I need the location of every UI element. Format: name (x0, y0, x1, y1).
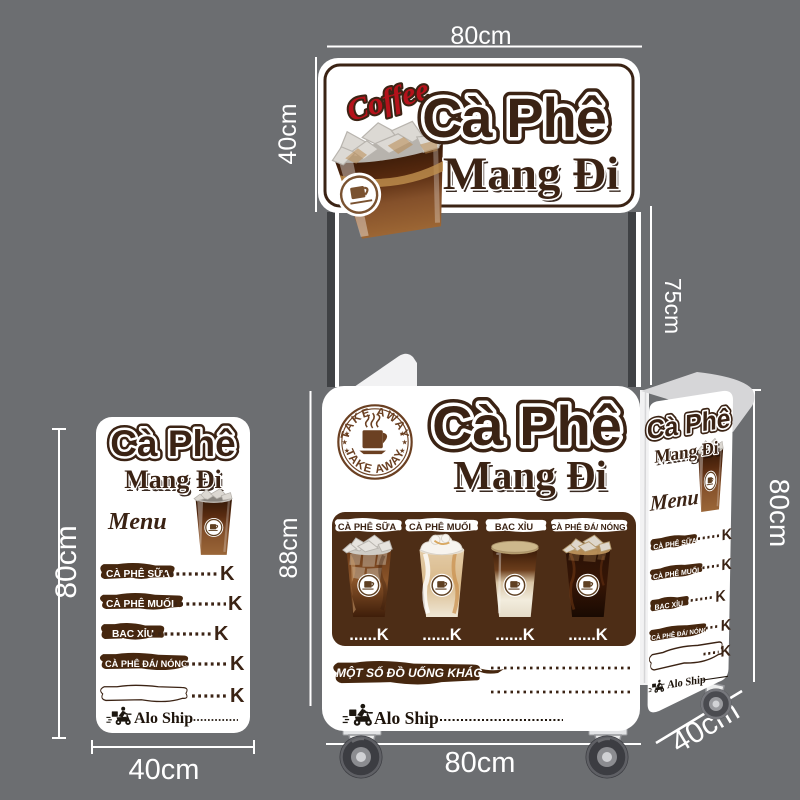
svg-text:Menu: Menu (107, 509, 167, 535)
svg-text:CÀ PHÊ ĐÁ/ NÓNG: CÀ PHÊ ĐÁ/ NÓNG (105, 658, 188, 669)
svg-text:CÀ PHÊ MUỐI: CÀ PHÊ MUỐI (409, 521, 471, 532)
svg-text:......K: ......K (495, 626, 535, 644)
svg-text:K: K (721, 616, 732, 635)
svg-text:Cà Phê: Cà Phê (422, 86, 606, 149)
svg-text:K: K (214, 623, 229, 645)
svg-text:K: K (715, 587, 726, 606)
svg-text:CÀ PHÊ SỮA: CÀ PHÊ SỮA (338, 521, 397, 532)
svg-text:Mang Đi: Mang Đi (453, 452, 607, 498)
svg-text:K: K (230, 653, 245, 675)
svg-text:BẠC XỈU: BẠC XỈU (112, 627, 154, 640)
svg-text:CÀ PHÊ MUỐI: CÀ PHÊ MUỐI (106, 596, 174, 610)
svg-text:Mang Đi: Mang Đi (443, 148, 619, 200)
svg-text:MỘT SỐ ĐỒ UỐNG KHÁC: MỘT SỐ ĐỒ UỐNG KHÁC (336, 665, 482, 680)
svg-text:CÀ PHÊ SỮA: CÀ PHÊ SỮA (106, 567, 171, 580)
svg-text:BẠC XỈU: BẠC XỈU (495, 521, 534, 532)
svg-text:Mang Đi: Mang Đi (124, 465, 222, 494)
svg-text:Alo Ship: Alo Ship (134, 710, 193, 727)
svg-text:K: K (230, 685, 245, 707)
svg-text:K: K (722, 525, 733, 544)
svg-text:K: K (228, 593, 243, 615)
svg-text:Cà Phê: Cà Phê (432, 394, 622, 457)
svg-text:Cà Phê: Cà Phê (110, 423, 235, 464)
svg-text:K: K (721, 555, 732, 574)
svg-text:......K: ......K (568, 626, 608, 644)
svg-text:CÀ PHÊ ĐÁ/ NÓNG: CÀ PHÊ ĐÁ/ NÓNG (550, 521, 625, 532)
svg-text:K: K (720, 642, 731, 661)
svg-text:......K: ......K (422, 626, 462, 644)
svg-text:Alo Ship: Alo Ship (374, 708, 439, 728)
svg-text:......K: ......K (349, 626, 389, 644)
svg-text:K: K (220, 563, 235, 585)
